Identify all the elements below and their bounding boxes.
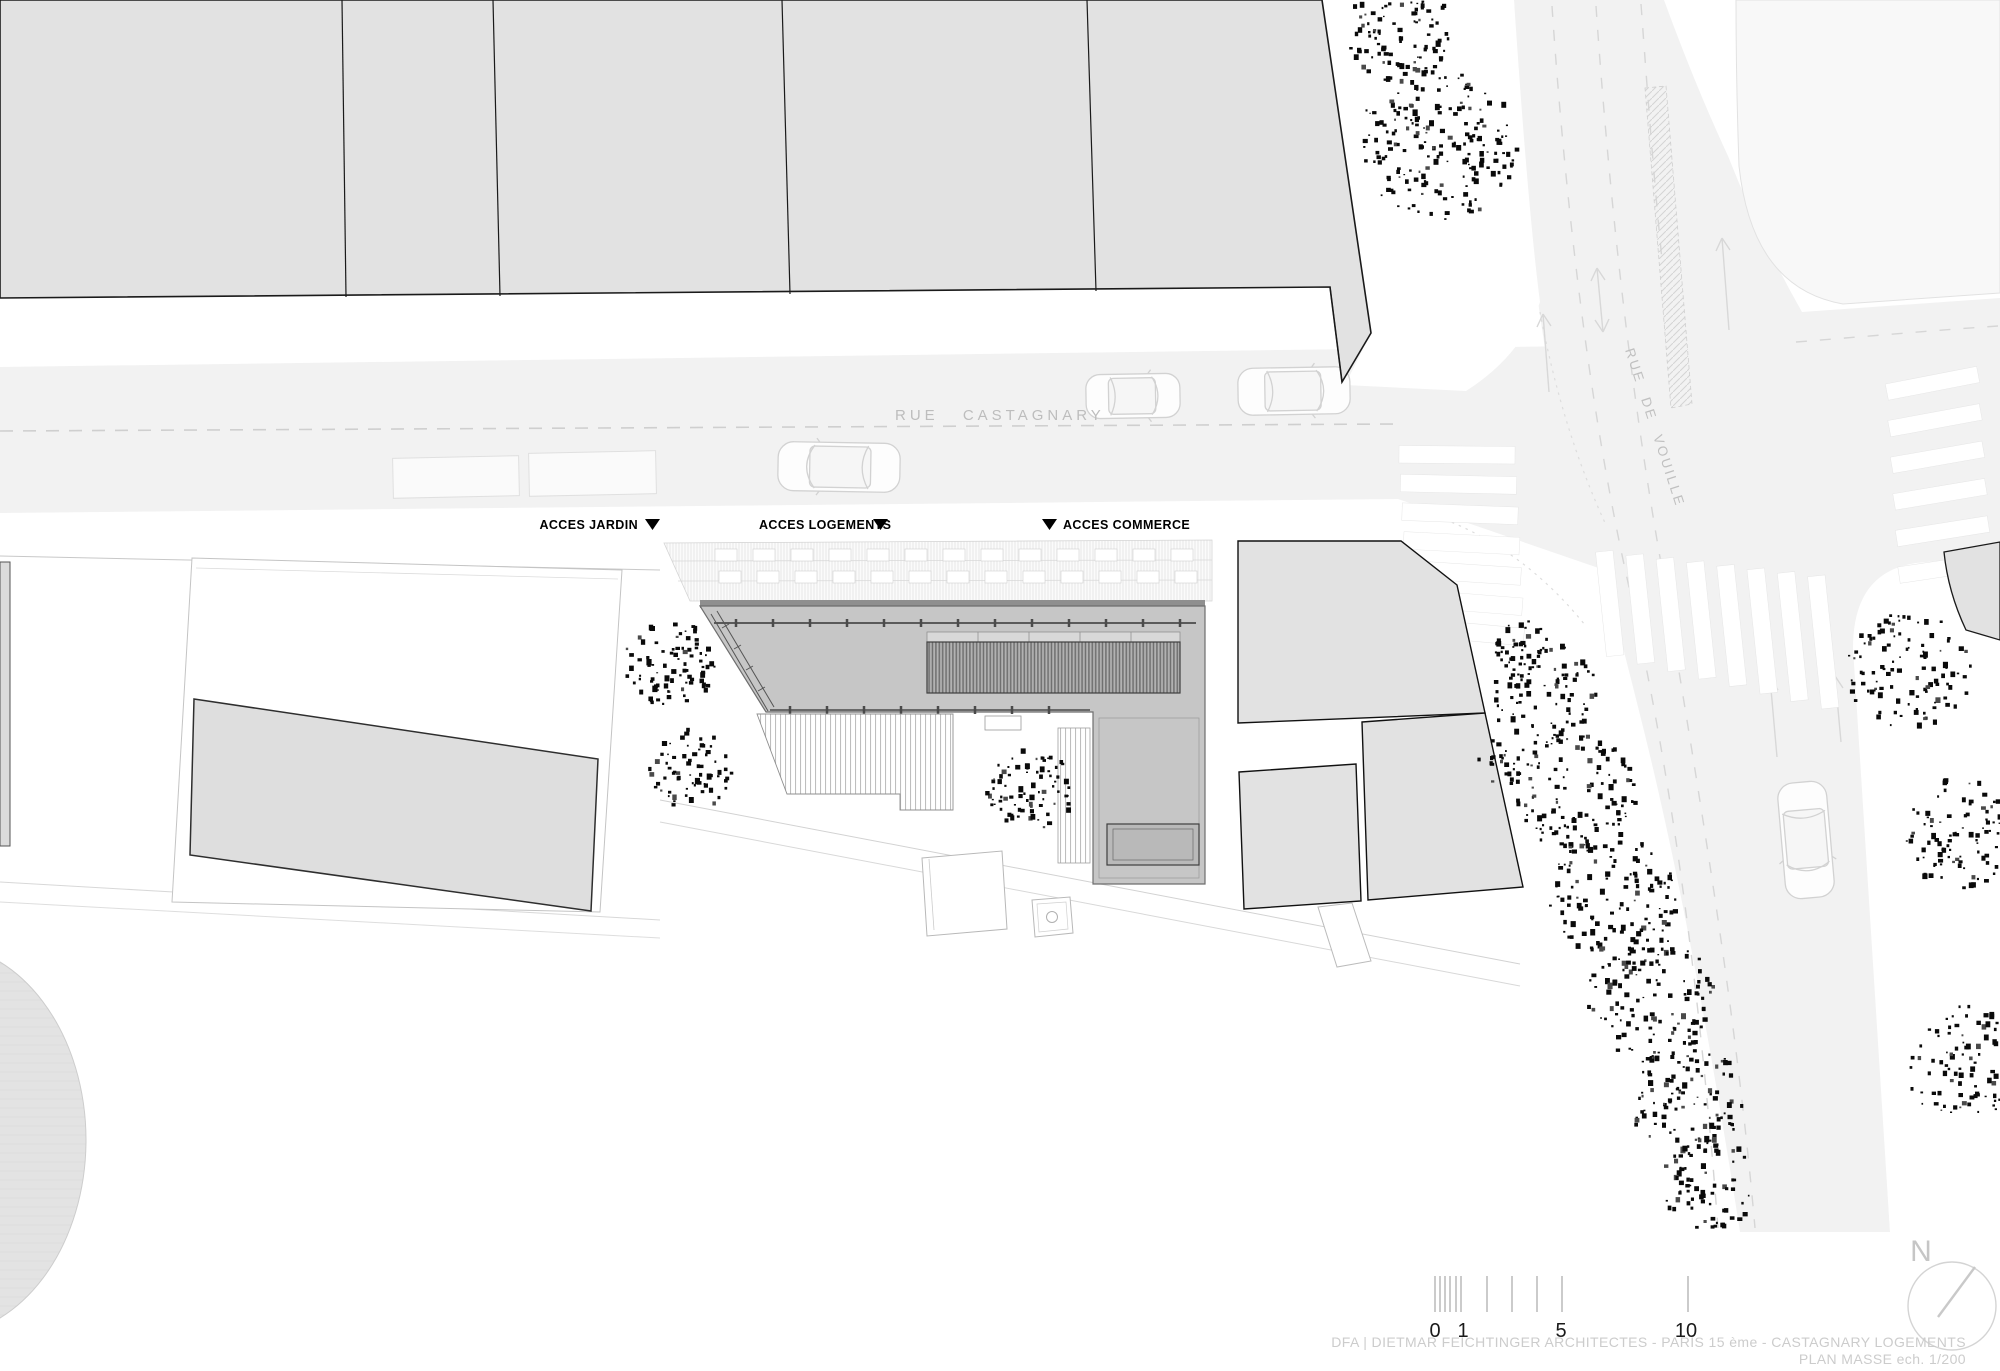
tree-dot (1587, 1005, 1591, 1009)
tree-dot (1532, 795, 1536, 798)
tree-dot (1517, 674, 1519, 676)
tree-dot (1916, 811, 1919, 814)
tree-dot (1575, 880, 1578, 883)
tree-dot (1663, 1103, 1665, 1105)
tree-dot (1635, 848, 1638, 851)
tree-dot (1940, 621, 1943, 624)
tree-dot (1697, 1097, 1699, 1098)
tree-dot (1514, 729, 1519, 735)
tree-dot (660, 790, 662, 792)
tree-dot (1564, 824, 1566, 827)
tree-dot (1694, 1186, 1699, 1191)
tree-dot (1959, 1068, 1962, 1070)
tree-dot (1682, 1146, 1687, 1152)
access-jardin-arrow-icon (645, 519, 660, 530)
title-block: DFA | DIETMAR FEICHTINGER ARCHITECTES - … (1331, 1334, 1966, 1367)
tree-dot (1505, 135, 1507, 137)
tree-dot (1670, 910, 1674, 914)
tree-dot (1727, 1061, 1732, 1065)
tree-dot (1561, 816, 1565, 819)
tree-dot (1993, 821, 1995, 823)
tree-dot (1659, 914, 1663, 918)
tree-dot (1527, 763, 1530, 765)
tree-dot (661, 650, 664, 653)
tree-dot (1531, 724, 1534, 727)
tree-dot (1524, 683, 1529, 688)
tree-dot (1577, 903, 1582, 909)
tree-dot (1511, 716, 1516, 722)
tree-dot (1701, 1163, 1706, 1169)
tree-dot (1480, 158, 1484, 163)
tree-dot (1937, 841, 1941, 846)
tree-dot (1701, 1200, 1705, 1204)
tree-dot (1618, 841, 1623, 845)
tree-dot (1555, 684, 1559, 688)
tree-dot (1612, 801, 1617, 806)
tree-dot (1672, 1207, 1676, 1211)
tree-dot (1695, 1139, 1697, 1141)
tree-dot (1487, 101, 1492, 106)
tree-dot (1959, 860, 1963, 863)
tree-dot (1586, 735, 1590, 739)
tree-dot (1958, 864, 1962, 869)
facade-window (943, 549, 965, 561)
tree-dot (1422, 1, 1425, 3)
tree-dot (1569, 861, 1572, 864)
tree-dot (1513, 763, 1515, 765)
tree-dot (1462, 106, 1465, 110)
tree-dot (1969, 783, 1971, 785)
tree-dot (1043, 826, 1045, 828)
tree-dot (1415, 21, 1418, 23)
tree-dot (1596, 747, 1599, 750)
tree-dot (1501, 651, 1503, 653)
tree-dot (1495, 138, 1499, 141)
tree-dot (714, 761, 716, 763)
tree-dot (1371, 11, 1376, 15)
tree-dot (1566, 826, 1569, 829)
tree-dot (1435, 104, 1440, 110)
tree-dot (1649, 1135, 1651, 1138)
tree-dot (1440, 129, 1445, 133)
tree-dot (1948, 1026, 1951, 1030)
tree-dot (1418, 19, 1420, 22)
tree-dot (1487, 151, 1489, 153)
tree-dot (1720, 1116, 1723, 1119)
tree-dot (1563, 677, 1567, 680)
tree-dot (1659, 908, 1661, 909)
tree-dot (1544, 685, 1546, 686)
tree-dot (1971, 800, 1974, 803)
tree-dot (1878, 711, 1881, 714)
tree-dot (1540, 838, 1543, 841)
tree-dot (1939, 821, 1941, 823)
tree-dot (1389, 100, 1394, 104)
tree-dot (1446, 85, 1448, 87)
facade-window (1019, 549, 1041, 561)
tree-dot (1606, 878, 1609, 880)
tree-dot (1615, 1001, 1619, 1006)
tree-dot (1026, 767, 1028, 770)
tree-dot (1421, 193, 1424, 195)
tree-dot (1743, 1212, 1748, 1216)
tree-dot (1703, 1017, 1708, 1022)
tree-dot (1567, 869, 1571, 874)
tree-dot (1957, 673, 1959, 675)
tree-dot (1520, 678, 1522, 681)
tree-dot (1545, 744, 1549, 747)
tree-dot (1688, 1042, 1691, 1045)
tree-dot (1850, 689, 1855, 693)
tree-dot (1976, 1021, 1981, 1025)
tree-dot (1512, 159, 1515, 161)
tree-dot (1501, 102, 1506, 108)
tree-dot (1916, 708, 1918, 710)
tree-dot (1408, 189, 1412, 192)
tree-dot (1415, 8, 1418, 12)
tree-dot (1909, 690, 1914, 695)
tree-dot (1500, 760, 1503, 764)
tree-dot (689, 681, 693, 685)
tree-dot (1595, 921, 1600, 926)
tree-dot (1985, 1096, 1987, 1098)
tree-dot (1642, 1113, 1647, 1118)
tree-dot (1995, 846, 1998, 848)
tree-dot (1626, 907, 1629, 911)
tree-dot (692, 782, 694, 784)
tree-dot (1950, 672, 1955, 678)
tree-dot (1993, 1094, 1996, 1099)
neighbor-parcel-small-west (1239, 764, 1361, 909)
tree-dot (1977, 781, 1981, 786)
tree-dot (1497, 130, 1500, 132)
tree-dot (1014, 804, 1016, 806)
tree-dot (1642, 1095, 1644, 1098)
tree-dot (1974, 1094, 1978, 1098)
tree-dot (1964, 650, 1968, 653)
tree-dot (1701, 997, 1704, 1000)
tree-dot (1449, 107, 1452, 110)
tree-dot (1375, 121, 1379, 126)
tree-dot (1892, 661, 1894, 663)
facade-window (1095, 549, 1117, 561)
tree-dot (1859, 633, 1864, 638)
tree-dot (1004, 785, 1006, 787)
tree-dot (673, 623, 678, 627)
tree-dot (1934, 1102, 1939, 1105)
tree-dot (701, 790, 705, 793)
tree-dot (1689, 1058, 1694, 1062)
tree-dot (1647, 1070, 1651, 1075)
facade-window (719, 571, 741, 583)
tree-dot (1353, 4, 1357, 9)
tree-dot (1994, 1041, 1999, 1046)
tree-dot (1740, 1104, 1743, 1108)
tree-dot (1698, 1138, 1701, 1142)
tree-dot (1047, 770, 1050, 772)
tree-dot (1882, 646, 1887, 652)
tree-dot (1587, 789, 1591, 792)
tree-dot (666, 762, 668, 765)
tree-dot (1551, 743, 1553, 744)
tree-dot (1911, 1087, 1914, 1091)
tree-dot (1946, 1018, 1948, 1020)
tree-dot (1585, 839, 1589, 843)
tree-dot (1953, 1105, 1957, 1109)
tree-dot (1662, 969, 1666, 973)
tree-dot (668, 767, 672, 770)
tree-dot (1038, 791, 1040, 793)
facade-window (871, 571, 893, 583)
tree-dot (1559, 730, 1564, 736)
tree-dot (1556, 798, 1558, 800)
tree-dot (1926, 685, 1931, 689)
tree-dot (697, 764, 700, 768)
tree-dot (1702, 1008, 1704, 1011)
terrace-deck-striped (757, 714, 953, 810)
tree-dot (1922, 667, 1924, 670)
tree-dot (1728, 1122, 1731, 1125)
tree-dot (651, 701, 654, 705)
tree-dot (1532, 666, 1535, 668)
tree-dot (1367, 69, 1372, 73)
tree-dot (638, 658, 642, 661)
tree-dot (1699, 1194, 1704, 1199)
tree-dot (1646, 904, 1649, 908)
tree-dot (1694, 1020, 1699, 1025)
tree-dot (1687, 989, 1692, 995)
crosswalk-stripe (1403, 532, 1520, 555)
tree-dot (1604, 937, 1607, 941)
tree-dot (1497, 638, 1501, 642)
tree-dot (1989, 830, 1991, 832)
tree-dot (1683, 980, 1685, 982)
tree-dot (1878, 692, 1883, 698)
tree-dot (1537, 815, 1542, 821)
tree-dot (1596, 772, 1598, 774)
tree-dot (1394, 109, 1397, 112)
tree-dot (1636, 999, 1640, 1003)
tree-dot (1471, 166, 1476, 171)
tree-dot (1555, 785, 1560, 789)
tree-dot (1610, 848, 1614, 852)
tree-dot (1889, 614, 1892, 617)
tree-dot (999, 774, 1003, 779)
tree-dot (725, 787, 728, 790)
tree-dot (1608, 983, 1613, 990)
tree-dot (698, 749, 700, 751)
tree-dot (1354, 54, 1359, 60)
tree-dot (1536, 828, 1538, 830)
tree-dot (1667, 886, 1669, 889)
tree-dot (1668, 875, 1673, 881)
tree-dot (1626, 778, 1629, 782)
tree-dot (1636, 884, 1639, 888)
tree-dot (626, 674, 630, 678)
tree-dot (1606, 822, 1609, 824)
tree-dot (1046, 813, 1050, 817)
tree-dot (1406, 126, 1409, 130)
tree-dot (1950, 1112, 1952, 1114)
tree-dot (1397, 205, 1399, 207)
tree-dot (1977, 878, 1979, 880)
tree-dot (1021, 748, 1026, 753)
tree-dot (1679, 1181, 1684, 1186)
tree-dot (1555, 703, 1557, 705)
tree-dot (1657, 954, 1659, 955)
tree-dot (1442, 4, 1446, 8)
tree-dot (1616, 804, 1618, 805)
tree-dot (1532, 787, 1534, 789)
tree-dot (1646, 1057, 1650, 1061)
tree-dot (1373, 160, 1375, 163)
tree-dot (1624, 877, 1629, 881)
tree-dot (1687, 1190, 1690, 1193)
tree-dot (1516, 702, 1518, 704)
tree-dot (1563, 920, 1567, 924)
tree-dot (670, 678, 674, 683)
tree-dot (1556, 734, 1559, 737)
tree-dot (1560, 898, 1564, 902)
tree-dot (1431, 19, 1433, 21)
tree-dot (1898, 620, 1900, 622)
tree-dot (687, 648, 691, 652)
tree-dot (1456, 145, 1461, 151)
tree-dot (1635, 1118, 1640, 1123)
tree-dot (1470, 139, 1474, 142)
tree-dot (1610, 912, 1614, 915)
tree-dot (1631, 1049, 1633, 1051)
tree-dot (1517, 756, 1520, 760)
tree-dot (1042, 798, 1044, 800)
tree-dot (1877, 623, 1881, 627)
tree-dot (1743, 1156, 1746, 1159)
tree-dot (1556, 801, 1558, 804)
tree-dot (1391, 103, 1395, 108)
facade-window (1061, 571, 1083, 583)
tree-dot (1040, 766, 1045, 772)
tree-dot (1479, 151, 1484, 157)
tree-dot (1604, 1018, 1607, 1021)
tree-dot (1576, 943, 1581, 949)
tree-dot (1616, 1035, 1621, 1039)
tree-dot (1515, 148, 1520, 152)
tree-dot (1997, 832, 2000, 835)
tree-dot (1964, 814, 1967, 817)
tree-dot (1383, 16, 1385, 17)
tree-dot (1972, 875, 1976, 879)
tree-dot (676, 771, 681, 775)
tree-dot (1861, 682, 1865, 686)
tree-dot (1505, 772, 1509, 775)
tree-dot (1558, 863, 1560, 865)
tree-dot (1378, 30, 1381, 34)
tree-dot (1949, 849, 1951, 851)
tree-dot (1424, 141, 1426, 143)
tree-dot (650, 626, 655, 631)
tree-dot (1975, 839, 1977, 841)
access-commerce-arrow-icon (1042, 519, 1057, 530)
tree-dot (1640, 961, 1645, 966)
tree-dot (1737, 1217, 1742, 1221)
tree-dot (1977, 1111, 1979, 1113)
tree-dot (1704, 1061, 1708, 1066)
tree-dot (1963, 867, 1965, 869)
tree-dot (1474, 171, 1479, 176)
tree-dot (1704, 1148, 1708, 1153)
tree-dot (1522, 749, 1525, 752)
tree-dot (1944, 789, 1947, 793)
tree-dot (1650, 1088, 1654, 1092)
tree-dot (1688, 1036, 1691, 1039)
tree-dot (1655, 876, 1660, 881)
tree-dot (1510, 165, 1513, 168)
tree-dot (1932, 667, 1936, 672)
tree-dot (699, 737, 702, 740)
tree-dot (1519, 622, 1524, 628)
tree-dot (1575, 745, 1580, 750)
tree-dot (670, 652, 674, 655)
tree-dot (1941, 674, 1945, 679)
facade-window (1137, 571, 1159, 583)
tree-dot (1695, 991, 1699, 995)
tree-dot (1650, 884, 1653, 888)
tree-dot (1681, 1106, 1685, 1109)
tree-dot (1432, 47, 1435, 51)
tree-dot (687, 745, 689, 747)
tree-dot (1868, 641, 1871, 645)
tree-dot (1366, 109, 1368, 111)
tree-dot (1642, 1071, 1644, 1074)
tree-dot (695, 647, 699, 650)
tree-dot (1506, 125, 1508, 127)
tree-dot (1668, 993, 1673, 998)
tree-dot (1920, 655, 1923, 658)
tree-dot (1618, 823, 1620, 825)
tree-dot (1671, 880, 1673, 882)
tree-dot (1454, 142, 1456, 144)
tree-dot (1664, 1164, 1668, 1168)
tree-dot (1520, 674, 1524, 678)
tree-dot (1410, 2, 1412, 4)
tree-dot (1628, 953, 1631, 956)
tree-dot (1645, 865, 1647, 867)
tree-dot (1748, 1195, 1750, 1197)
tree-dot (1501, 646, 1505, 649)
tree-dot (1472, 134, 1475, 137)
tree-dot (1954, 1072, 1958, 1076)
tree-dot (1483, 144, 1485, 146)
tree-dot (667, 690, 669, 693)
tree-dot (1569, 865, 1571, 867)
tree-dot (1462, 203, 1465, 206)
tree-dot (702, 666, 705, 668)
tree-dot (1508, 661, 1510, 663)
tree-dot (1427, 155, 1430, 157)
tree-dot (1554, 668, 1556, 671)
tree-dot (1566, 721, 1569, 724)
tree-dot (1521, 715, 1525, 718)
tree-dot (1566, 768, 1568, 771)
tree-dot (1948, 1032, 1951, 1035)
tree-dot (1970, 1073, 1974, 1077)
tree-dot (1691, 1198, 1694, 1201)
tree-dot (1907, 616, 1911, 620)
tree-dot (1037, 819, 1039, 821)
tree-dot (1635, 891, 1640, 896)
tree-dot (629, 653, 634, 657)
tree-dot (1930, 825, 1933, 827)
